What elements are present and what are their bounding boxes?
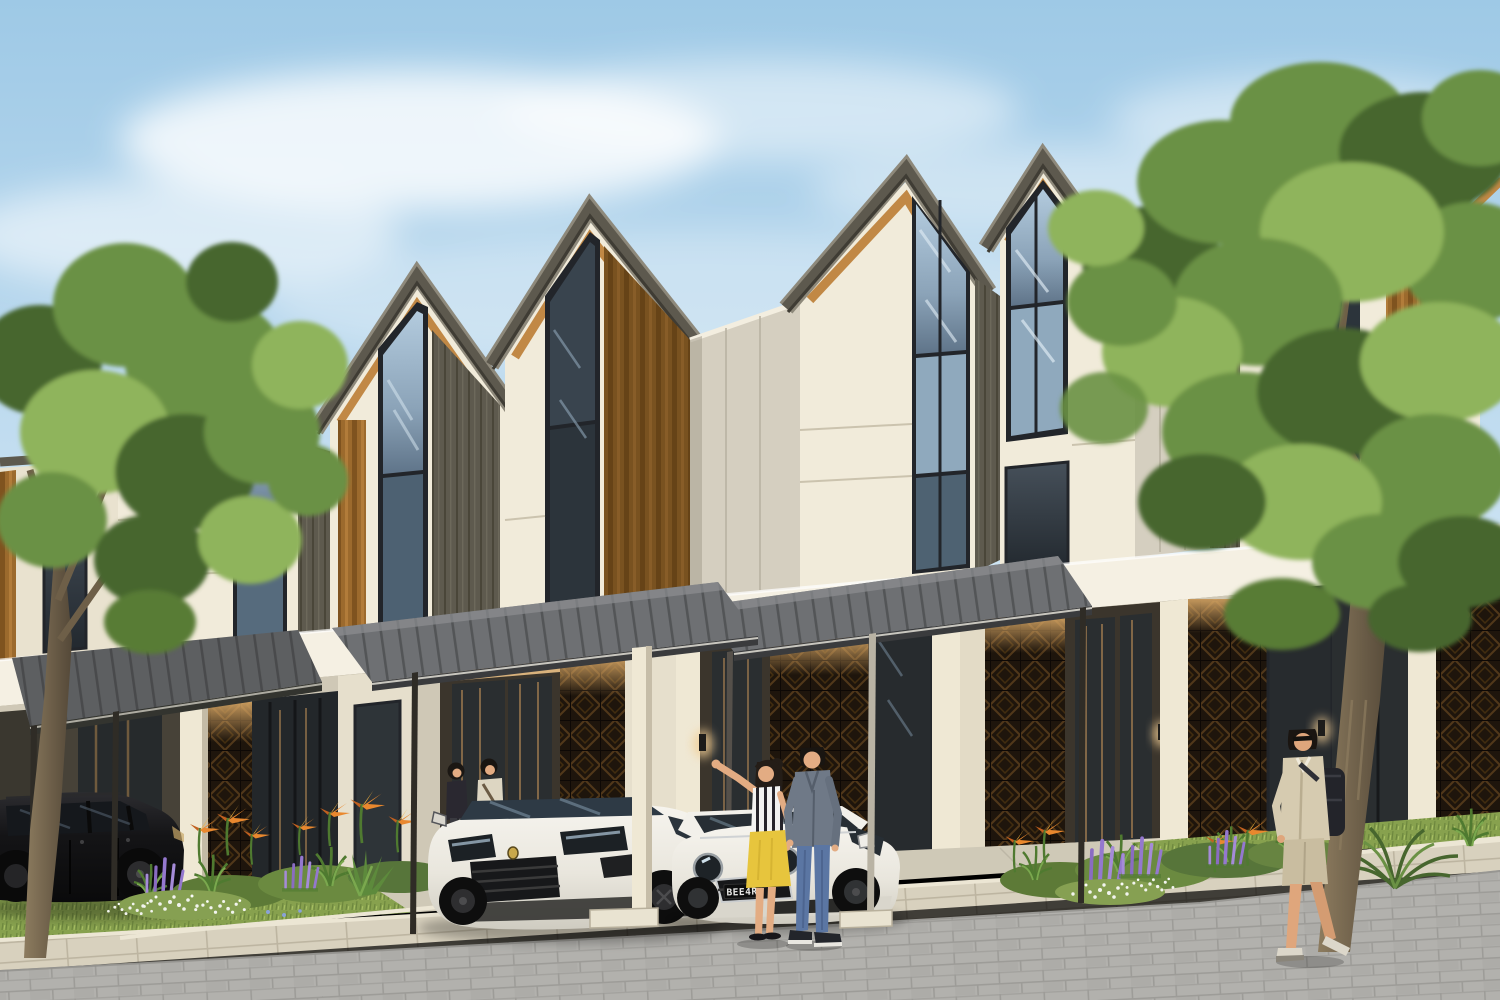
scene-canvas: BEE4R bbox=[0, 0, 1500, 1000]
wall-lamp bbox=[693, 730, 713, 758]
yellow-skirt bbox=[746, 830, 791, 888]
townhouse-render: BEE4R bbox=[0, 0, 1500, 1000]
recessed-band-3-4 bbox=[690, 302, 800, 598]
sunglasses bbox=[1293, 738, 1312, 739]
plate-text: BEE4R bbox=[726, 886, 757, 898]
